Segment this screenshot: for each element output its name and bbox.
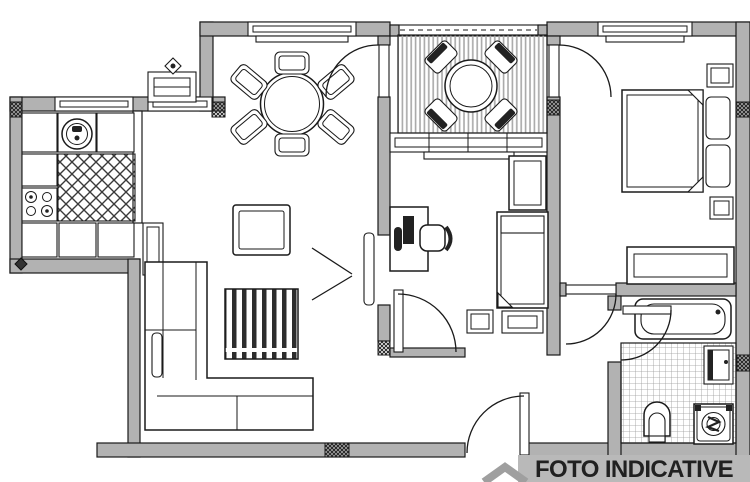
dining-table: [261, 73, 324, 136]
bathtub-icon: [635, 299, 731, 339]
pier: [325, 443, 349, 457]
nightstand: [707, 64, 733, 87]
sink-icon: [62, 119, 92, 149]
pier: [212, 102, 225, 117]
single-bed: [497, 212, 548, 308]
kitchen-bottom-wall: [10, 259, 140, 273]
bedroom-window: [598, 22, 692, 42]
study-entry-door: [394, 290, 456, 352]
kitchen-window-1: [55, 97, 133, 111]
bedroom-entry-door: [566, 285, 616, 344]
entrance-door: [467, 393, 529, 455]
bathroom: [621, 299, 736, 444]
bedroom-balcony-door: [549, 45, 611, 97]
kitchen-cabinet: [59, 223, 96, 257]
pier: [378, 341, 390, 355]
balcony-table: [445, 60, 497, 112]
right-exterior-wall: [736, 22, 750, 457]
bathroom-left-wall-b: [608, 362, 621, 457]
dining-area: [229, 52, 356, 156]
bedroom-bottom-wall-b: [616, 283, 736, 296]
photo-indicative-label: FOTO INDICATIVE: [484, 455, 750, 482]
left-exterior-wall: [10, 97, 22, 273]
pillow: [706, 145, 730, 187]
dining-window: [248, 22, 356, 42]
pillow: [706, 97, 730, 139]
pier: [547, 100, 560, 115]
balcony: [398, 35, 547, 133]
nightstand: [710, 197, 733, 219]
side-table: [467, 310, 493, 333]
label-text: FOTO INDICATIVE: [535, 456, 734, 482]
bottom-wall-right: [528, 443, 750, 457]
office-chair: [420, 225, 451, 251]
bedroom-left-wall-b: [547, 97, 560, 355]
toilet-icon: [644, 402, 670, 442]
living-door: [312, 233, 374, 305]
kitchen-cabinet: [22, 223, 57, 257]
living-left-wall: [128, 259, 140, 457]
double-bed: [622, 90, 703, 192]
striped-rug: [225, 289, 298, 359]
wardrobe: [509, 156, 546, 210]
living-right-wall-b: [378, 97, 390, 235]
washing-machine-icon: [694, 404, 733, 444]
kitchen-cabinet: [22, 154, 57, 186]
living-area: [145, 205, 374, 430]
bedroom-bottom-wall-a: [560, 283, 566, 296]
study-bedroom: [390, 156, 548, 333]
bottom-wall-left: [97, 443, 465, 457]
balcony-railing: [390, 25, 547, 36]
kitchen: [22, 58, 196, 275]
dining-chair: [275, 134, 309, 156]
kitchen-cabinet: [98, 223, 134, 257]
pier: [737, 355, 750, 371]
vanity-sink-icon: [704, 346, 733, 384]
balcony-glazed-window: [390, 133, 547, 159]
floor-plan-drawing: FOTO INDICATIVE: [0, 0, 750, 482]
living-right-wall-a: [378, 36, 390, 45]
lattice-counter: [58, 154, 135, 221]
tv-table: [233, 205, 290, 255]
kitchen-cabinet: [97, 113, 134, 152]
floor-plan-canvas: FOTO INDICATIVE: [0, 0, 750, 482]
pier: [736, 102, 750, 117]
pier: [10, 102, 22, 117]
dresser: [627, 247, 734, 284]
kitchen-cabinet: [22, 113, 57, 152]
dining-chair: [275, 52, 309, 74]
radiator-icon: [148, 58, 196, 102]
living-right-wall-c: [378, 305, 390, 341]
nightstand: [502, 311, 543, 333]
bedroom: [622, 64, 734, 284]
stove-icon: [22, 188, 57, 221]
bedroom-left-wall-a: [547, 36, 560, 45]
